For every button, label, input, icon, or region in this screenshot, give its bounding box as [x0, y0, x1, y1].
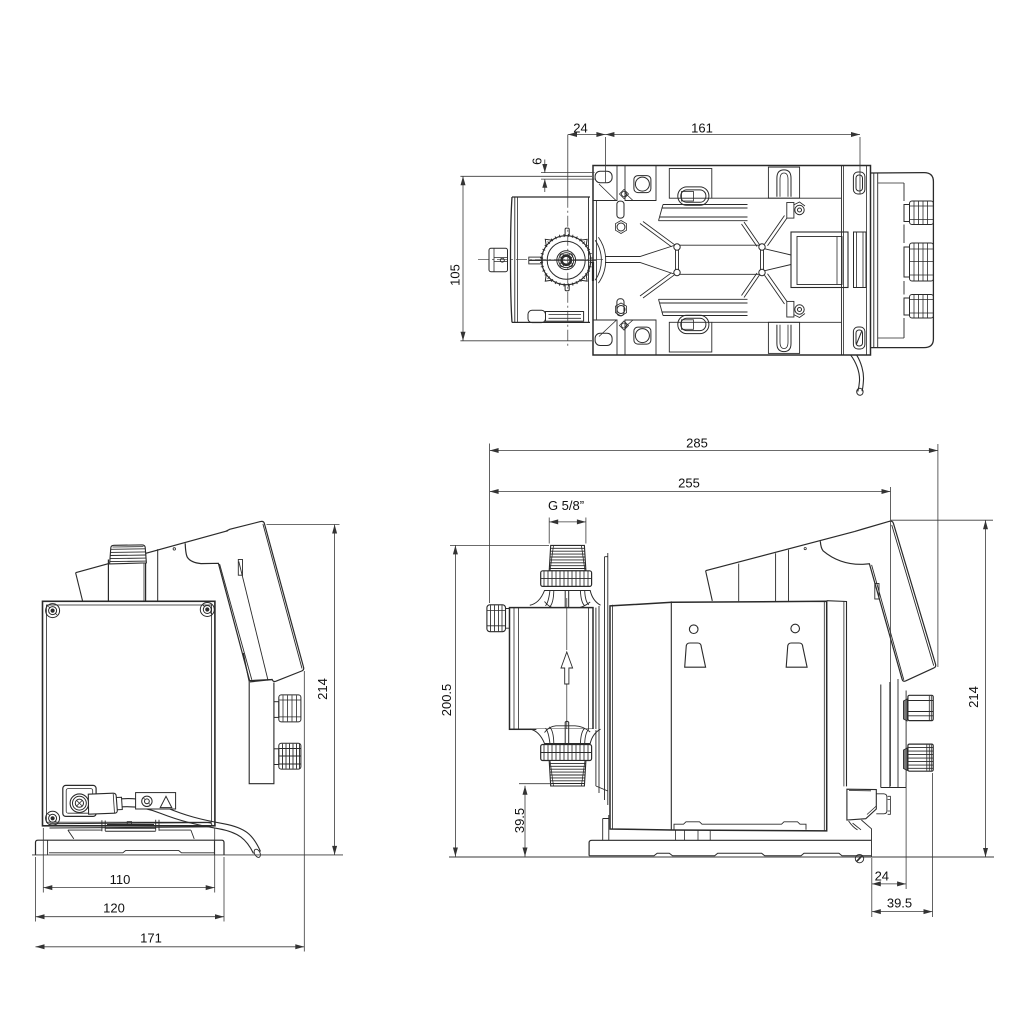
svg-text:161: 161	[691, 121, 713, 136]
svg-text:6: 6	[530, 158, 545, 165]
svg-text:120: 120	[103, 901, 125, 916]
svg-text:110: 110	[110, 872, 131, 887]
svg-text:200.5: 200.5	[439, 684, 454, 717]
svg-text:214: 214	[315, 678, 330, 700]
svg-text:171: 171	[140, 931, 162, 946]
svg-text:105: 105	[448, 264, 463, 286]
svg-text:255: 255	[678, 476, 700, 491]
svg-text:24: 24	[573, 121, 587, 136]
svg-text:G 5/8”: G 5/8”	[548, 498, 584, 513]
svg-text:39.5: 39.5	[512, 808, 527, 833]
svg-text:24: 24	[875, 869, 889, 884]
svg-text:285: 285	[686, 436, 708, 451]
svg-text:214: 214	[966, 686, 981, 708]
svg-text:39.5: 39.5	[887, 896, 912, 911]
